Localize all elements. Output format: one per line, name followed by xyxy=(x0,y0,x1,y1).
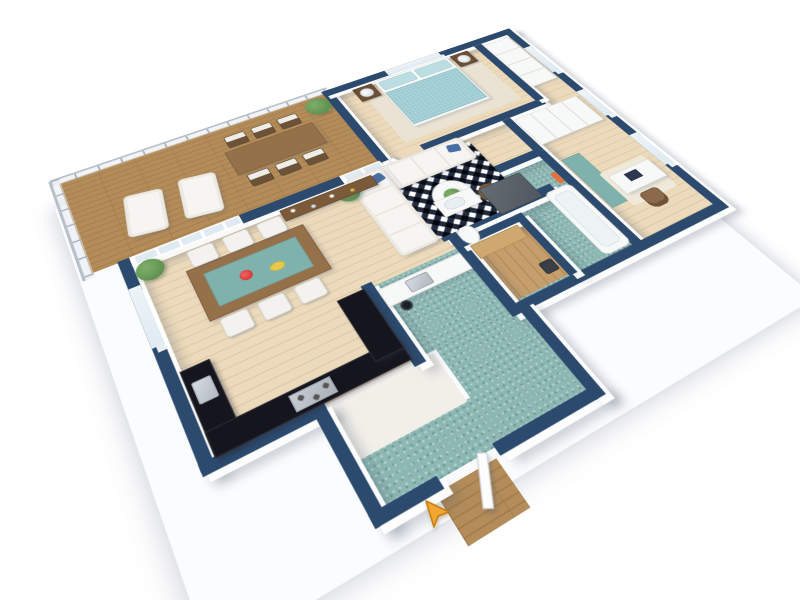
floor-plan-viewport xyxy=(0,0,800,600)
cursor-arrow xyxy=(424,500,450,530)
projection-scaler xyxy=(28,0,772,554)
perspective-stage xyxy=(28,0,772,554)
floor-plan[interactable] xyxy=(57,29,771,560)
